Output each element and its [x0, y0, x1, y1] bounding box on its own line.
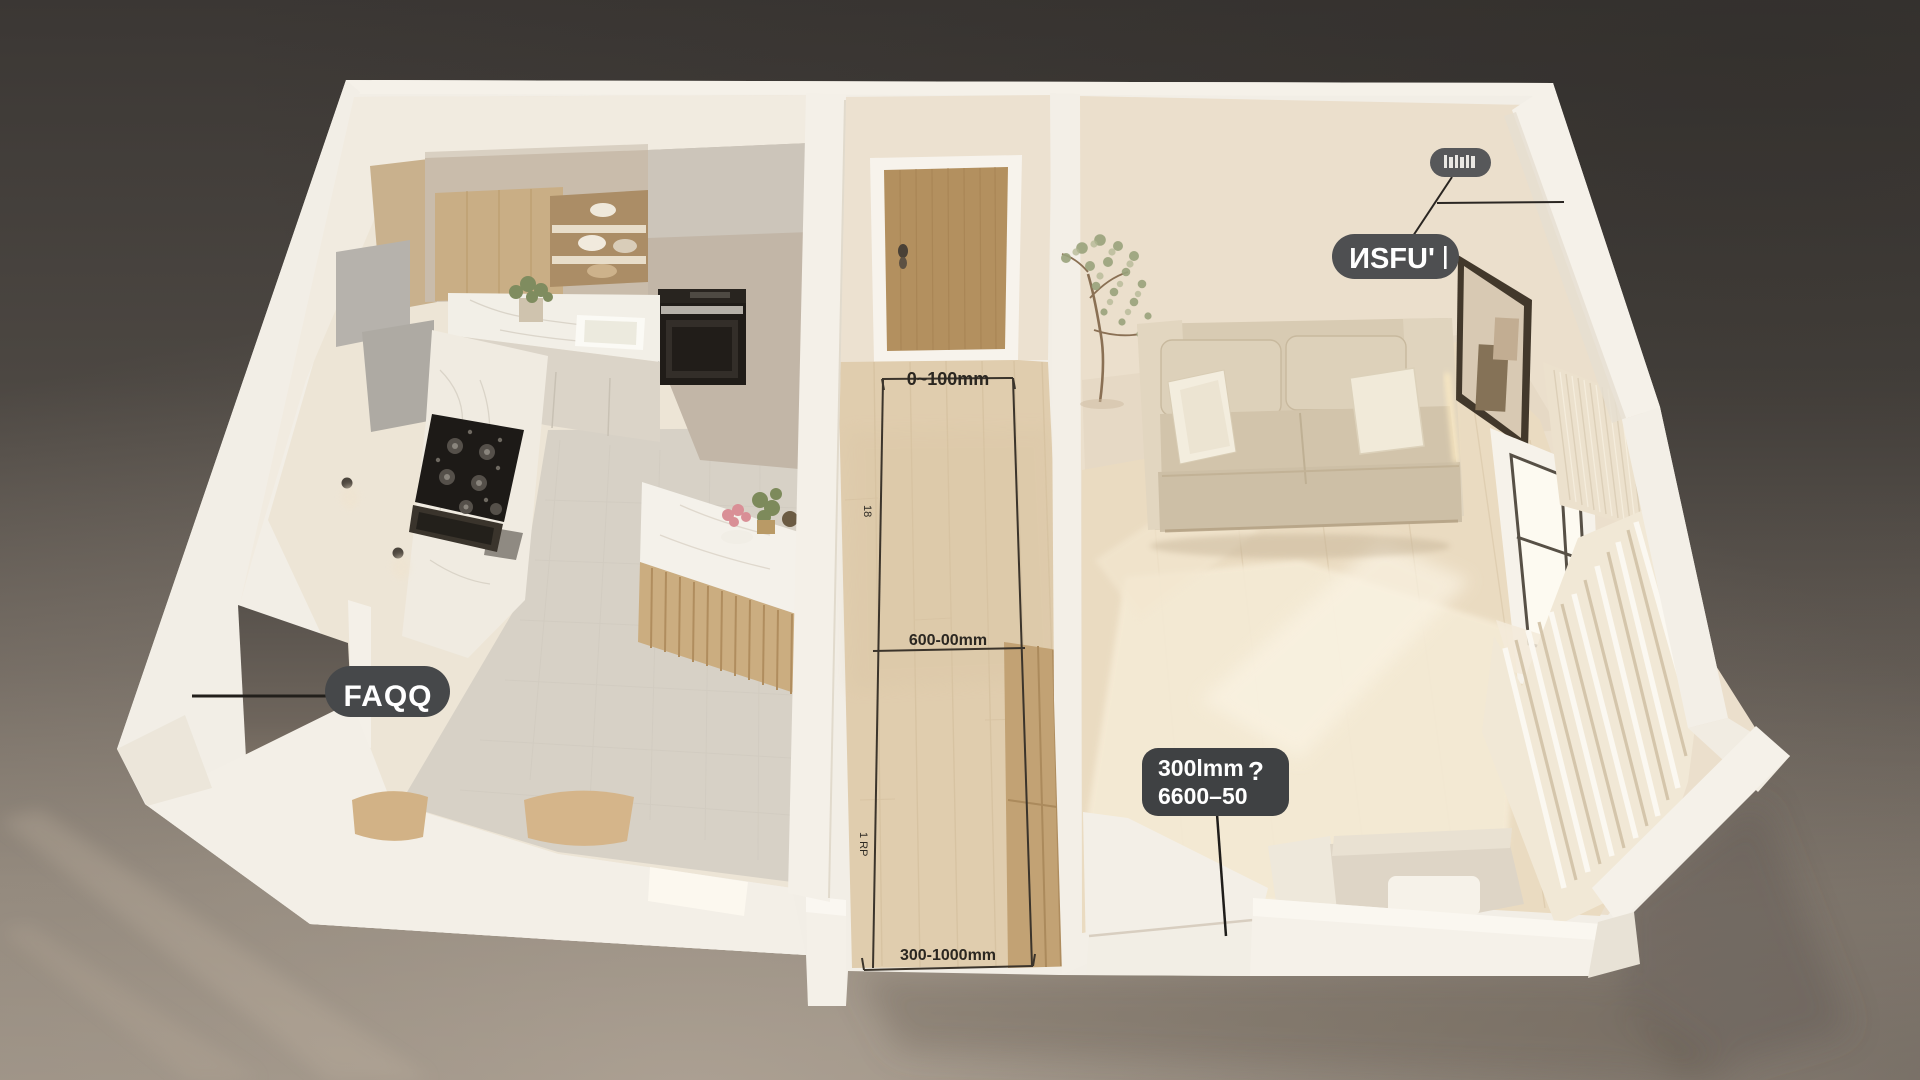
svg-text:18: 18 — [861, 505, 873, 517]
svg-text:6600–50: 6600–50 — [1158, 783, 1248, 809]
svg-text:FAQQ: FAQQ — [343, 680, 432, 713]
svg-text:300-1000mm: 300-1000mm — [900, 947, 996, 964]
svg-text:0~100mm: 0~100mm — [907, 369, 990, 389]
svg-text:1 RP: 1 RP — [857, 832, 869, 856]
svg-text:?: ? — [1248, 756, 1264, 786]
svg-text:300lmm: 300lmm — [1158, 755, 1244, 781]
svg-text:600-00mm: 600-00mm — [909, 632, 987, 649]
svg-text:ИSFU': ИSFU' — [1349, 243, 1435, 275]
